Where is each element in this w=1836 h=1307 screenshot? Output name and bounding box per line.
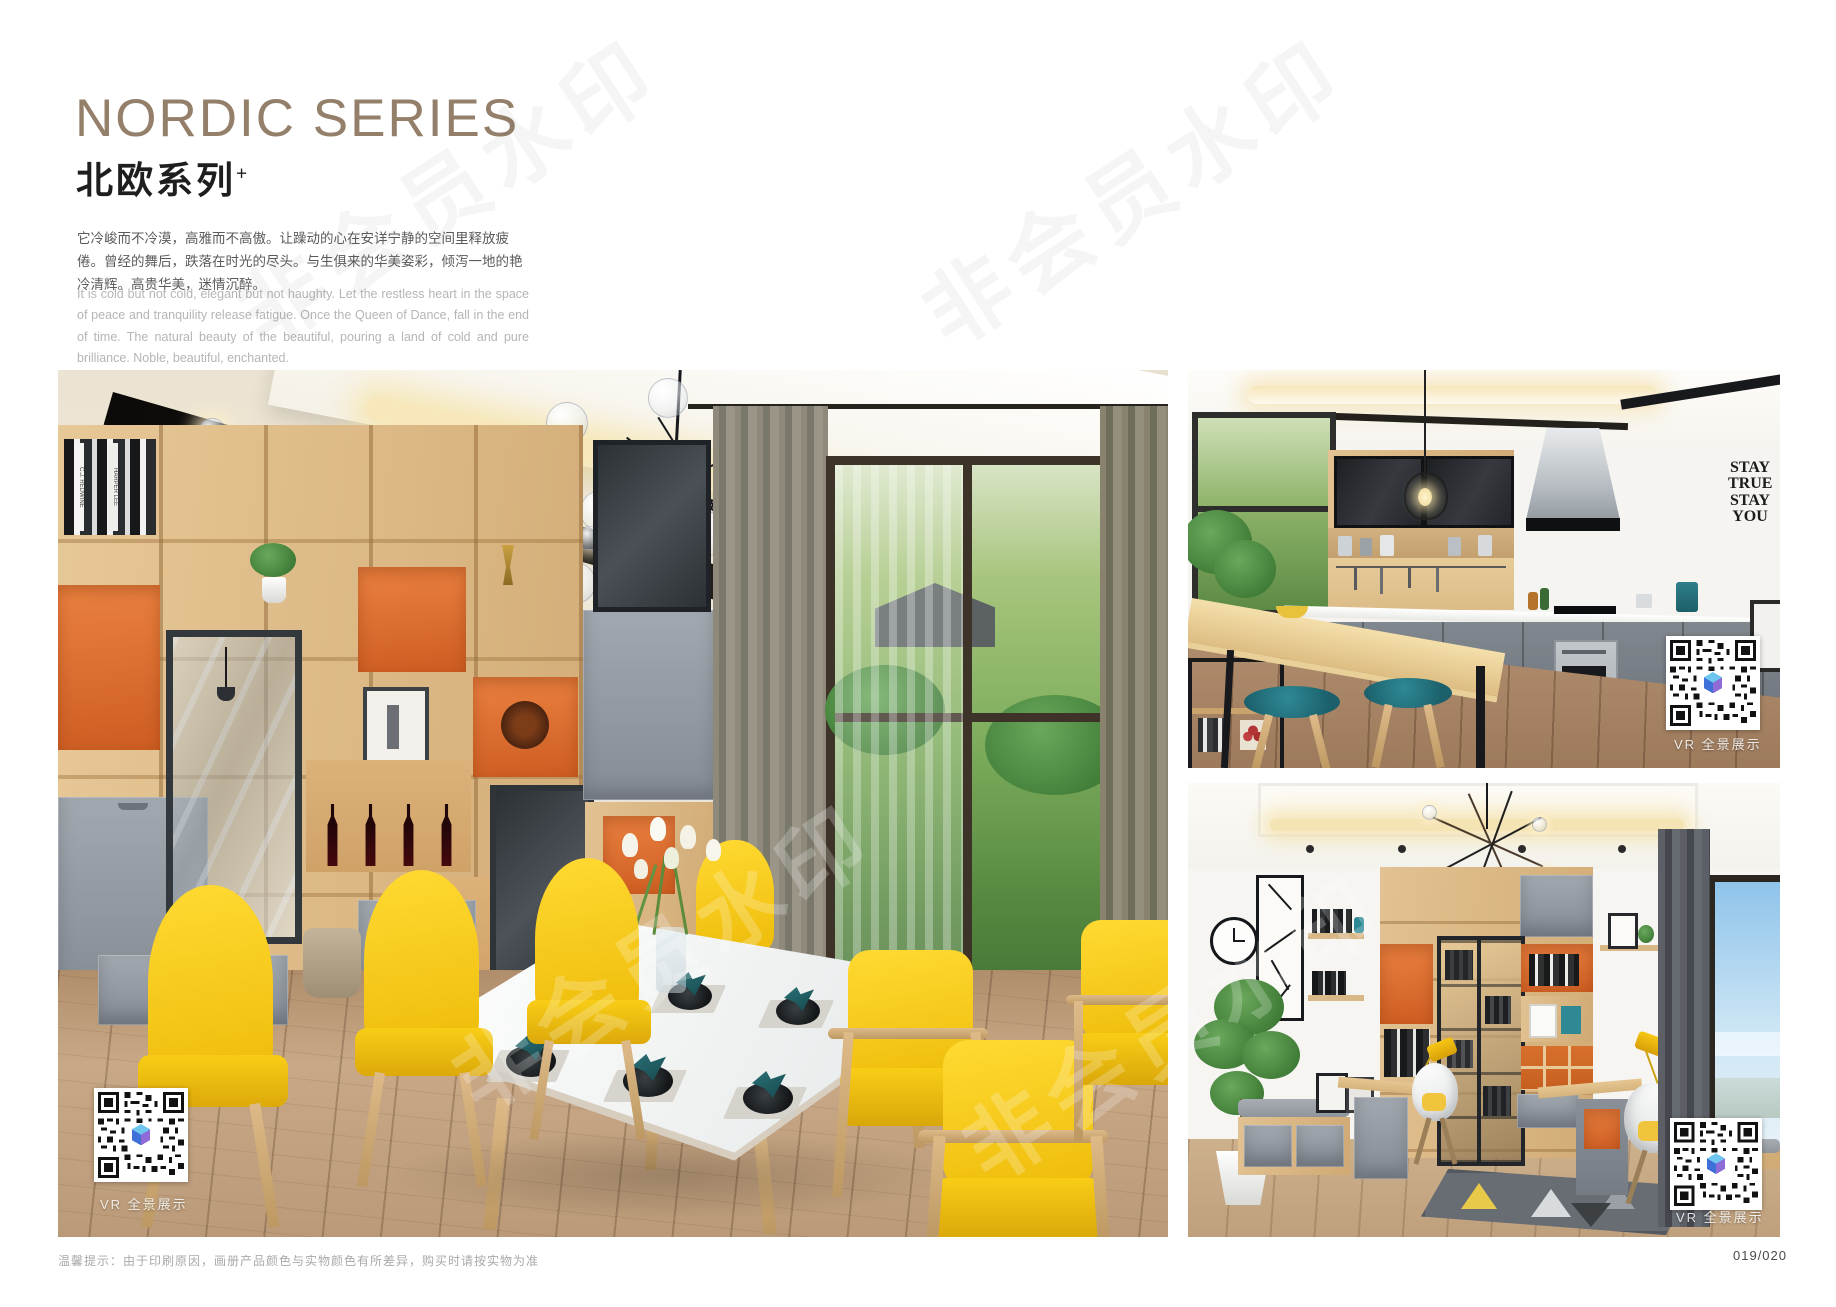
chair-pillow bbox=[1422, 1093, 1446, 1111]
bar-stool-seat bbox=[1364, 678, 1452, 708]
qr-code-graphic bbox=[98, 1092, 184, 1178]
black-mirror-panel bbox=[593, 440, 711, 612]
glass-vase bbox=[656, 927, 686, 993]
decor-plate bbox=[501, 701, 549, 749]
kitchen-photo: STAY TRUE STAY YOU bbox=[1188, 370, 1780, 768]
gray-wall-cabinet bbox=[583, 610, 715, 800]
cloud bbox=[1715, 1032, 1780, 1056]
flower bbox=[680, 825, 696, 849]
page-subtitle: 北欧系列+ bbox=[76, 150, 250, 204]
hood-control-panel bbox=[1526, 518, 1620, 531]
chair-leg bbox=[249, 1103, 279, 1228]
jar bbox=[1478, 535, 1492, 556]
plant-leaves bbox=[250, 543, 296, 577]
page-title: NORDIC SERIES bbox=[75, 88, 519, 149]
rug-triangle bbox=[1571, 1203, 1611, 1227]
oil-bottle bbox=[1528, 592, 1538, 610]
vr-panorama-label: VR 全景展示 bbox=[1674, 734, 1762, 753]
watermark: 非会员水印 bbox=[895, 4, 1366, 370]
shelf-books bbox=[1312, 909, 1352, 933]
page-number: 019/020 bbox=[1733, 1248, 1787, 1263]
hanging-utensil bbox=[1436, 568, 1439, 592]
catalog-page: NORDIC SERIES 北欧系列+ 它冷峻而不冷漠，高雅而不高傲。让躁动的心… bbox=[0, 0, 1836, 1307]
small-art-frame bbox=[1529, 1004, 1557, 1038]
desk-pedestal bbox=[1576, 1099, 1628, 1195]
chandelier-bulb bbox=[648, 378, 688, 418]
books bbox=[1445, 950, 1473, 980]
jar bbox=[1380, 535, 1394, 556]
wall-shelf bbox=[1308, 995, 1364, 1001]
hanging-utensil bbox=[1380, 568, 1383, 594]
chandelier-bulb bbox=[1532, 817, 1547, 832]
mini-pendant bbox=[225, 647, 227, 687]
chair-seat bbox=[355, 1028, 493, 1076]
chair-leg bbox=[529, 1040, 554, 1140]
wine-bottle bbox=[402, 804, 415, 866]
bookshelf-books: C.J. REDWINE HARPER LEE bbox=[64, 439, 156, 535]
cooktop bbox=[1554, 606, 1616, 614]
chair-seat bbox=[932, 1178, 1104, 1237]
books bbox=[1483, 1086, 1511, 1116]
chandelier-bulb bbox=[1422, 805, 1437, 820]
clock-hand bbox=[1233, 940, 1245, 942]
wall-quote-line: TRUE bbox=[1728, 476, 1772, 492]
wall-quote-line: STAY bbox=[1728, 493, 1772, 509]
chair-leg bbox=[1074, 1001, 1083, 1141]
pendant-bulb bbox=[1418, 488, 1432, 506]
flower bbox=[650, 817, 666, 841]
bench-drawer bbox=[1296, 1125, 1344, 1167]
shelf-post bbox=[1188, 662, 1192, 768]
study-shelving-unit bbox=[1380, 867, 1593, 1158]
hanging-utensil bbox=[1408, 568, 1411, 588]
wine-bottle bbox=[440, 804, 453, 866]
wine-shelf bbox=[306, 760, 471, 872]
door-handle bbox=[118, 803, 148, 810]
downlight bbox=[1306, 845, 1314, 853]
oven-handle bbox=[1562, 650, 1606, 654]
orange-cubby bbox=[473, 677, 578, 777]
art-line bbox=[1268, 884, 1292, 911]
trophy bbox=[498, 545, 518, 585]
bench-drawer bbox=[1244, 1125, 1292, 1167]
orange-cubby bbox=[58, 585, 160, 750]
shelf-books bbox=[1312, 971, 1346, 995]
chair-back bbox=[535, 858, 639, 1020]
wall-quote-line: STAY bbox=[1728, 460, 1772, 476]
print-notice: 温馨提示：由于印刷原因，画册产品颜色与实物颜色有所差异，购买时请按实物为准 bbox=[58, 1252, 539, 1269]
subtitle-text: 北欧系列 bbox=[76, 160, 236, 201]
rug-triangle bbox=[1461, 1183, 1497, 1209]
books bbox=[1529, 954, 1579, 986]
chandelier-wire bbox=[1486, 783, 1488, 829]
hanging-utensil bbox=[1354, 568, 1357, 590]
eames-chair-shell bbox=[1412, 1063, 1458, 1121]
plant-pot bbox=[262, 577, 286, 603]
art-line bbox=[1264, 929, 1296, 952]
backsplash-panel bbox=[1328, 558, 1514, 610]
wall-quote-line: YOU bbox=[1728, 509, 1772, 525]
book-spine: C.J. REDWINE bbox=[74, 443, 84, 531]
cove-light bbox=[1248, 386, 1658, 404]
vr-panorama-label: VR 全景展示 bbox=[1676, 1207, 1764, 1226]
horizon bbox=[1715, 1078, 1780, 1118]
gray-upper-cabinet bbox=[1520, 875, 1593, 937]
dining-chair bbox=[523, 858, 658, 1148]
downlight bbox=[1398, 845, 1406, 853]
dining-armchair-partial bbox=[1066, 915, 1168, 1155]
bench-base bbox=[1238, 1117, 1350, 1175]
pot bbox=[1636, 594, 1652, 608]
dining-room-photo: C.J. REDWINE HARPER LEE bbox=[58, 370, 1168, 1237]
chair-seat bbox=[527, 1000, 651, 1044]
potted-plant-cell bbox=[240, 543, 310, 615]
intro-paragraph-en: It is cold but not cold, elegant but not… bbox=[77, 284, 529, 369]
orange-cubby bbox=[1380, 944, 1433, 1024]
chair-back bbox=[364, 870, 479, 1050]
cage-pendant-lamp bbox=[1404, 472, 1448, 520]
orange-cubby bbox=[358, 567, 466, 672]
books bbox=[1485, 996, 1511, 1024]
qr-code bbox=[1666, 636, 1760, 730]
jar bbox=[1448, 537, 1461, 556]
flower bbox=[664, 847, 679, 869]
chair-seat bbox=[1074, 1033, 1168, 1085]
qr-code-graphic bbox=[1674, 1122, 1758, 1206]
cactus bbox=[1638, 925, 1654, 943]
study-room-photo: VR 全景展示 bbox=[1188, 783, 1780, 1237]
book-spine: HARPER LEE bbox=[108, 443, 118, 531]
bar-leg bbox=[1476, 666, 1485, 768]
wine-bottle bbox=[326, 804, 339, 866]
bar-stool-seat bbox=[1244, 686, 1340, 718]
plant-leaves bbox=[1214, 540, 1276, 598]
flower bbox=[622, 833, 638, 857]
coffee-machine bbox=[1676, 582, 1698, 612]
subtitle-plus: + bbox=[236, 164, 250, 185]
jar bbox=[1360, 538, 1372, 556]
qr-code bbox=[1670, 1118, 1762, 1210]
plant-leaves bbox=[1242, 1031, 1300, 1079]
teal-vase bbox=[1354, 917, 1364, 933]
utensil-rail bbox=[1336, 566, 1506, 568]
dining-chair bbox=[350, 870, 500, 1190]
chair-leg bbox=[621, 1040, 646, 1140]
qr-code bbox=[94, 1088, 188, 1182]
photo-figure bbox=[387, 705, 399, 749]
gray-drawer bbox=[1517, 1094, 1579, 1128]
vr-panorama-label: VR 全景展示 bbox=[100, 1194, 188, 1213]
rug-triangle bbox=[1531, 1189, 1571, 1217]
oil-bottle bbox=[1540, 588, 1549, 610]
jar bbox=[1338, 536, 1352, 556]
flower bbox=[706, 839, 721, 861]
chair-back bbox=[148, 885, 273, 1080]
mini-pendant-shade bbox=[217, 687, 235, 701]
open-shelf bbox=[1328, 528, 1514, 558]
pendant-wire bbox=[1424, 370, 1426, 476]
teal-print bbox=[1561, 1006, 1581, 1034]
chair-leg bbox=[357, 1072, 385, 1187]
chair-back-cushion bbox=[1081, 920, 1168, 1040]
display-cell bbox=[1521, 996, 1593, 1042]
chair-leg bbox=[459, 1072, 487, 1187]
downlight bbox=[1618, 845, 1626, 853]
qr-code-graphic bbox=[1670, 640, 1756, 726]
orange-niche bbox=[1584, 1109, 1620, 1149]
wall-clock bbox=[1210, 917, 1258, 965]
orange-cubby bbox=[1521, 944, 1593, 992]
wine-bottle bbox=[364, 804, 377, 866]
wall-quote: STAY TRUE STAY YOU bbox=[1728, 460, 1772, 525]
bookcase-mullion bbox=[1477, 940, 1481, 1162]
small-frame bbox=[1608, 913, 1638, 949]
wall-shelf bbox=[1308, 933, 1364, 939]
desk-pedestal bbox=[1354, 1097, 1408, 1179]
